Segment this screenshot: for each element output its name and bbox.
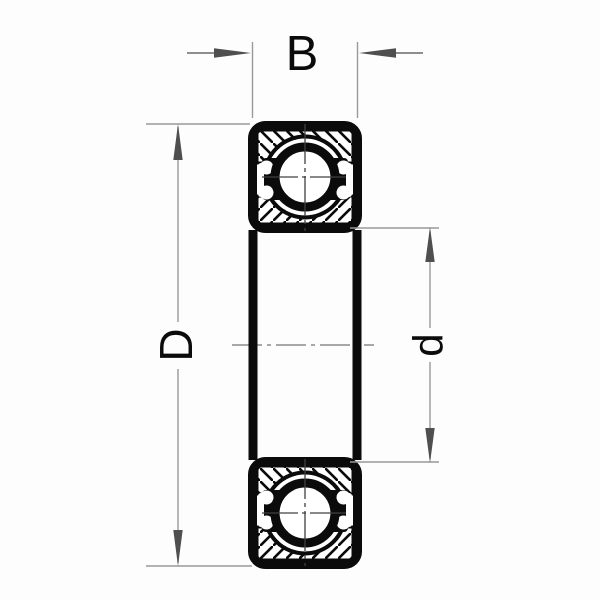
outer-diameter-label: D <box>150 328 202 361</box>
b-arrow-left-icon <box>214 48 251 58</box>
dimension-b: B <box>187 27 423 118</box>
b-arrow-right-icon <box>359 48 396 58</box>
d-outer-arrow-down-icon <box>173 530 182 566</box>
d-outer-arrow-up-icon <box>173 124 182 160</box>
bore-diameter-label: d <box>405 333 452 356</box>
bearing-diagram-canvas: B D d <box>0 0 600 600</box>
bearing-section-top <box>253 124 358 231</box>
bearing-diagram: B D d <box>0 0 600 600</box>
bearing-section-bottom <box>253 459 358 566</box>
width-dimension-label: B <box>286 27 319 81</box>
d-bore-arrow-up-icon <box>425 227 434 262</box>
d-bore-arrow-down-icon <box>425 428 434 463</box>
